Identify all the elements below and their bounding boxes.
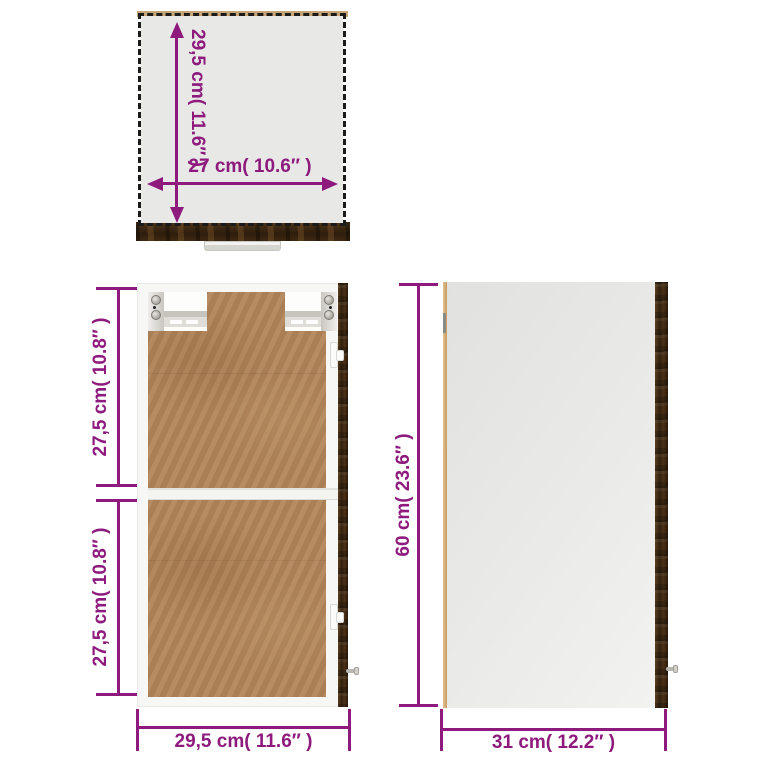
- bracket-dot-icon: [329, 306, 332, 309]
- side-depth-dimension-label: 31 cm( 12.2″ ): [441, 732, 666, 754]
- top-width-dimension-label: 27 cm( 10.6″ ): [155, 156, 345, 178]
- bracket-slot: [186, 320, 198, 324]
- product-dimension-diagram: 29,5 cm( 11.6″ ) 27 cm( 10.6″ ): [0, 0, 767, 767]
- front-upper-dimension-line: [117, 289, 120, 486]
- bracket-side-mark: [443, 313, 446, 333]
- front-lower-dimension-line: [117, 501, 120, 696]
- front-upper-dimension-label: 27,5 cm( 10.8″ ): [90, 287, 112, 487]
- bracket-slot: [170, 320, 182, 324]
- side-front-edge-wood: [655, 282, 668, 708]
- arrow-right-icon: [322, 177, 338, 191]
- side-panel: [447, 282, 655, 708]
- cabinet-top-outline: [138, 13, 346, 226]
- front-width-dimension-label: 29,5 cm( 11.6″ ): [137, 731, 350, 753]
- bracket-screw-icon: [324, 295, 334, 305]
- bracket-slot: [306, 320, 318, 324]
- arrow-down-icon: [170, 207, 184, 223]
- front-width-dimension-line: [136, 726, 351, 729]
- bracket-screw-icon: [151, 310, 161, 320]
- bracket-dot-icon: [153, 306, 156, 309]
- arrow-up-icon: [170, 22, 184, 38]
- door-edge-wood: [338, 283, 348, 707]
- side-depth-dimension-line: [440, 728, 667, 731]
- top-view: 29,5 cm( 11.6″ ) 27 cm( 10.6″ ): [0, 0, 767, 260]
- side-height-dimension-label: 60 cm( 23.6″ ): [393, 395, 415, 595]
- side-view: 60 cm( 23.6″ ) 31 cm( 12.2″ ): [390, 260, 767, 767]
- shelf: [148, 488, 338, 500]
- front-lower-dimension-label: 27,5 cm( 10.8″ ): [90, 497, 112, 697]
- side-height-dimension-line: [417, 285, 420, 706]
- bracket-slot: [291, 320, 303, 324]
- back-panel-lower: [148, 500, 326, 697]
- back-panel-seam-2: [148, 560, 326, 561]
- bracket-screw-icon: [151, 295, 161, 305]
- dimension-tick: [399, 704, 438, 707]
- back-panel-seam: [148, 373, 326, 374]
- bracket-screw-icon: [324, 310, 334, 320]
- mounting-bracket-left: [148, 292, 207, 331]
- front-view: 27,5 cm( 10.8″ ) 27,5 cm( 10.8″ ) 29,5 c…: [0, 260, 400, 767]
- wall-rail-tab: [204, 241, 281, 251]
- top-width-dimension-line: [160, 182, 326, 185]
- arrow-left-icon: [147, 177, 163, 191]
- mounting-bracket-right: [285, 292, 337, 331]
